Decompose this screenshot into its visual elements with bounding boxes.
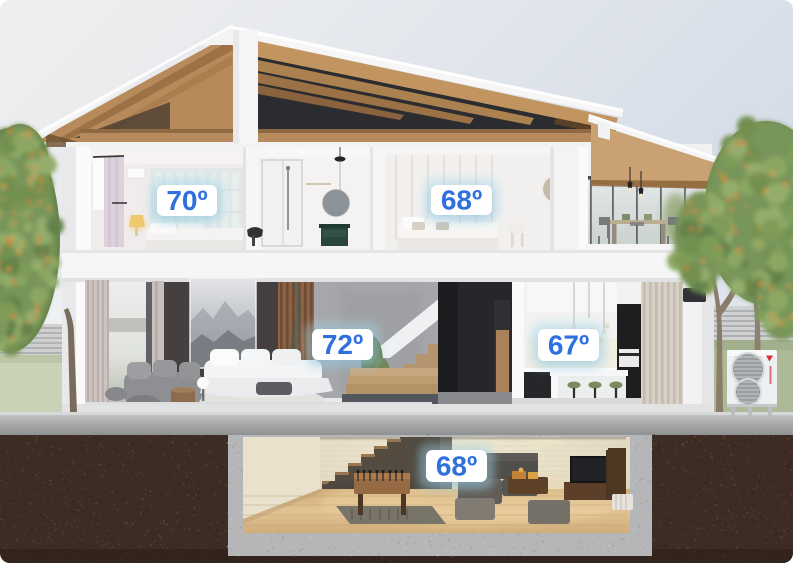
svg-text:72º: 72º — [322, 329, 363, 360]
svg-text:70º: 70º — [166, 185, 207, 216]
svg-text:68º: 68º — [441, 185, 482, 216]
